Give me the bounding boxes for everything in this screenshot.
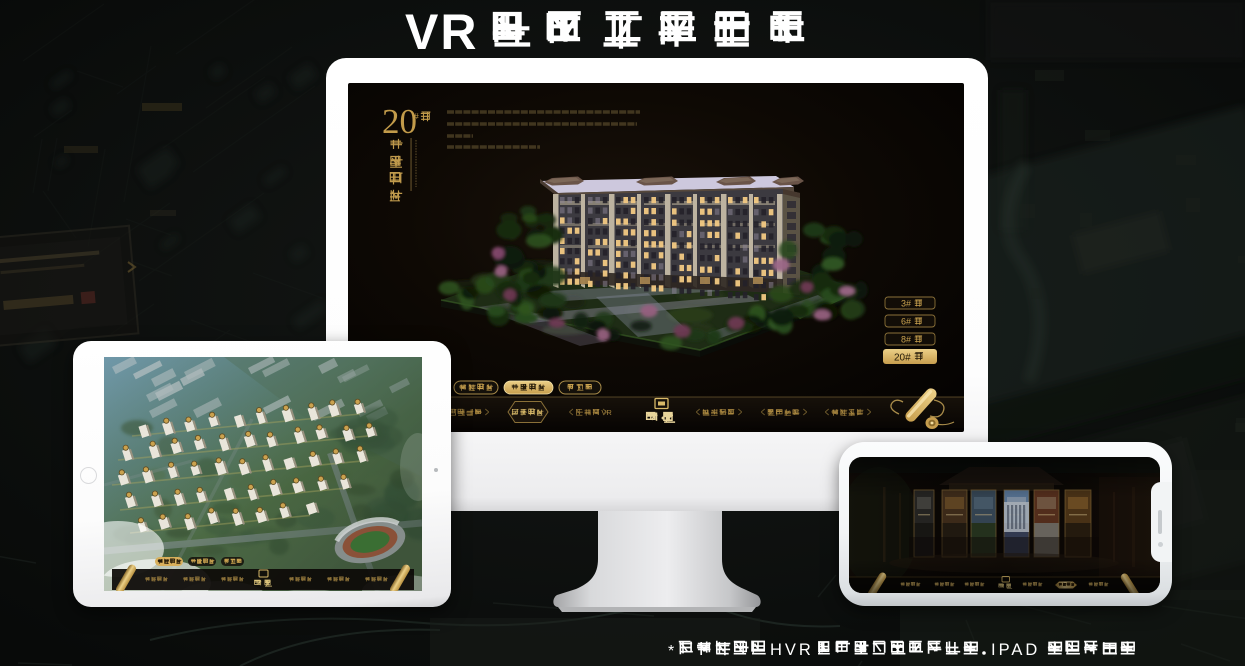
svg-text:*: * — [668, 643, 674, 660]
svg-text:IPAD: IPAD — [991, 641, 1040, 659]
svg-text:8#: 8# — [901, 335, 911, 345]
svg-text:3#: 3# — [901, 299, 911, 309]
svg-text:6#: 6# — [901, 317, 911, 327]
svg-text:20#: 20# — [894, 353, 911, 364]
svg-text:HVR: HVR — [770, 641, 814, 659]
svg-text:#: # — [414, 111, 419, 121]
svg-text:VR: VR — [405, 4, 478, 60]
svg-text:20: 20 — [382, 102, 417, 141]
